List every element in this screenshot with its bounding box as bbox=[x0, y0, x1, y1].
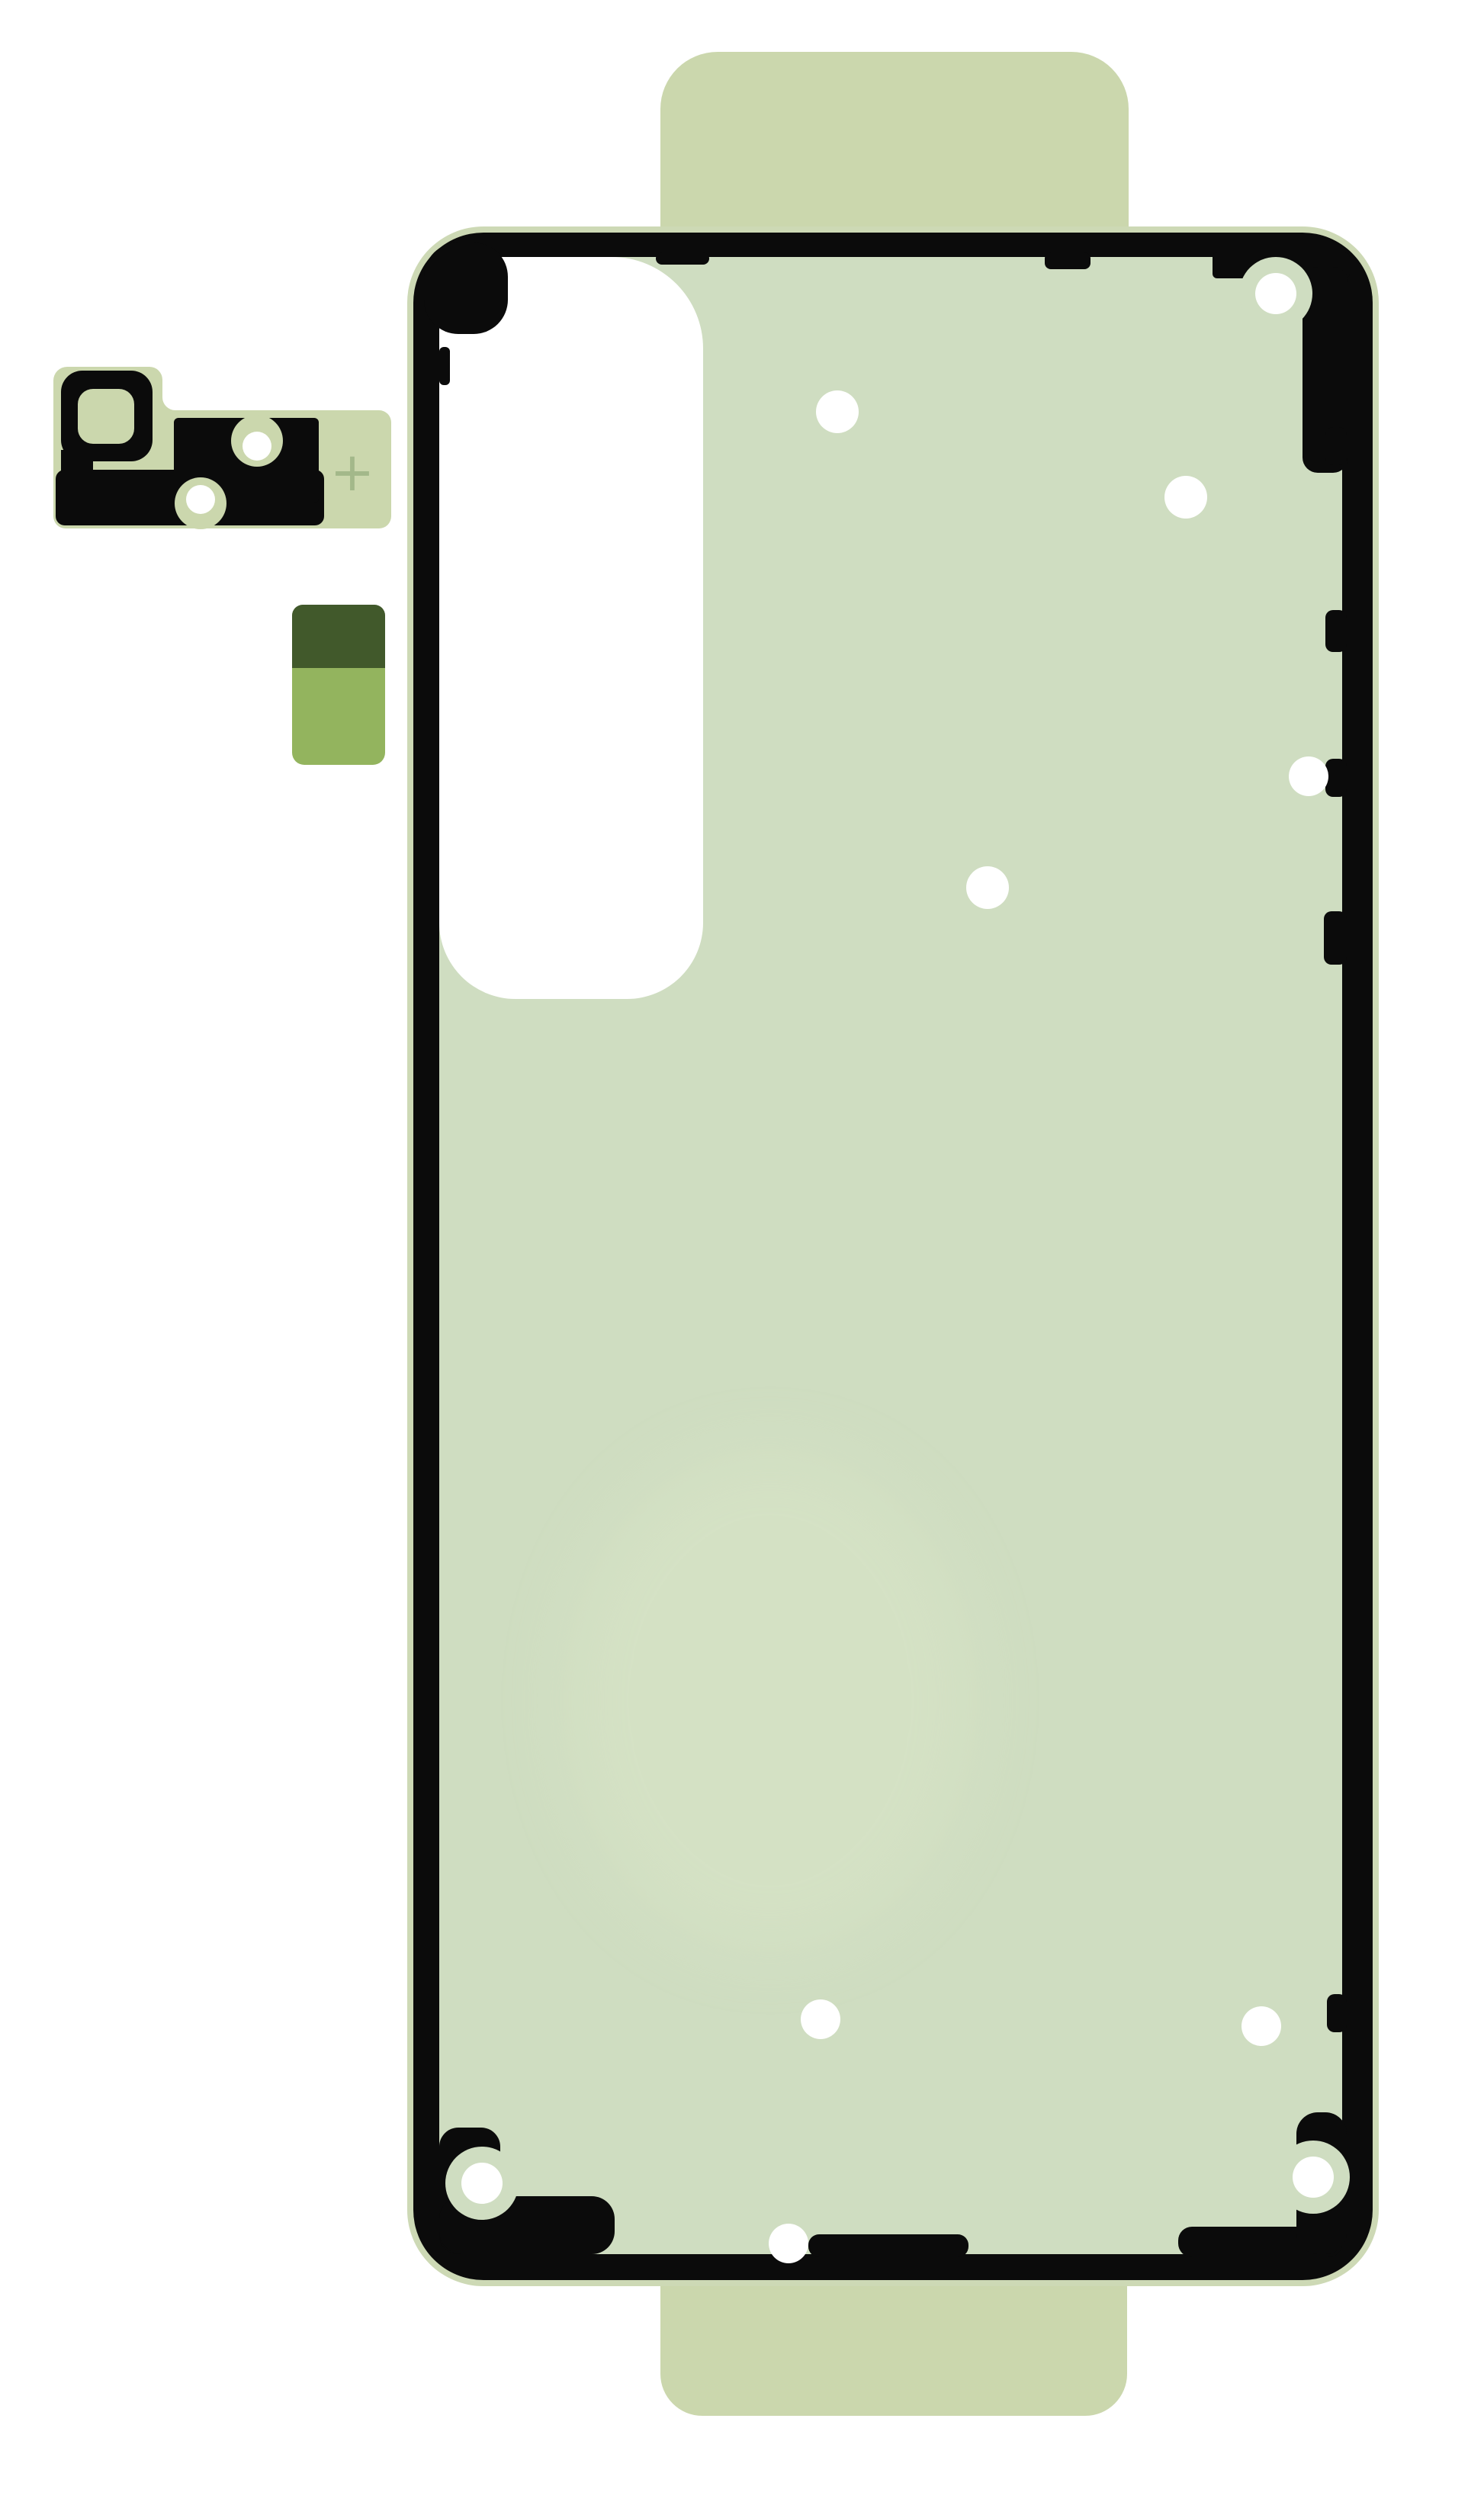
gasket-bump bbox=[1325, 610, 1347, 652]
punch-hole bbox=[801, 1999, 840, 2039]
camera-island-cutout bbox=[439, 257, 703, 999]
gasket-bump bbox=[1325, 759, 1347, 797]
liner-watermark-highlight bbox=[564, 1449, 976, 1952]
gasket-bump bbox=[439, 347, 450, 385]
gasket-bump bbox=[656, 252, 709, 265]
punch-hole bbox=[816, 390, 859, 433]
punch-hole bbox=[461, 2163, 503, 2204]
camera-piece-hole bbox=[243, 432, 271, 461]
gasket-bump bbox=[808, 2234, 968, 2257]
punch-hole bbox=[1289, 756, 1328, 796]
two-tone-sticker bbox=[292, 605, 385, 765]
gasket-bump bbox=[424, 242, 508, 334]
product-photo-canvas: + bbox=[0, 0, 1484, 2518]
punch-hole bbox=[1164, 476, 1207, 519]
punch-hole bbox=[1241, 2006, 1281, 2046]
gasket-bump bbox=[1327, 1994, 1347, 2032]
punch-hole bbox=[1293, 2157, 1334, 2198]
gasket-bump bbox=[1325, 427, 1347, 465]
punch-hole bbox=[1255, 273, 1296, 314]
gasket-bump bbox=[1324, 911, 1347, 965]
gasket-bump bbox=[1045, 252, 1091, 269]
punch-hole bbox=[769, 2224, 808, 2263]
plus-registration-mark: + bbox=[330, 441, 375, 503]
punch-hole bbox=[966, 866, 1009, 909]
two-tone-sticker-dark-half bbox=[292, 605, 385, 668]
camera-piece-hole bbox=[186, 485, 215, 514]
